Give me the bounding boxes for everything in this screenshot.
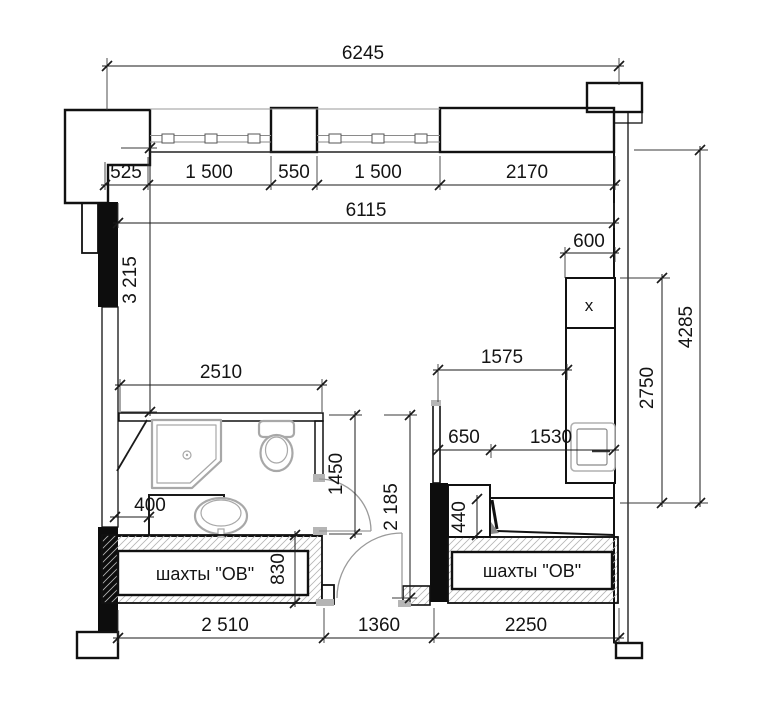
dim-bathroom-depth-label: 1450	[326, 453, 347, 495]
floor-plan-page: x шахты "ОВ" шахты "ОВ"	[0, 0, 770, 715]
dim-interior-width-label: 6115	[346, 200, 387, 221]
dim-2170: 2170	[506, 162, 548, 183]
entry-threshold-pad-right	[398, 600, 411, 607]
dim-1500a: 1 500	[185, 162, 233, 183]
dim-counter-depth: 600	[560, 231, 620, 278]
window-band	[150, 109, 440, 152]
dim-interior-width: 6115	[113, 200, 619, 228]
partition-pad	[431, 400, 441, 406]
dim-bathroom-width: 2510	[115, 362, 327, 412]
dim-hall-depth-label: 2 185	[381, 483, 402, 531]
kitchen-mark-label: x	[585, 296, 594, 315]
column-left-top	[98, 202, 118, 307]
wall-left-pilaster	[82, 203, 98, 253]
window-pier	[271, 108, 317, 152]
dim-counter-depth-label: 600	[573, 231, 605, 252]
dim-bath-cabinet-label: 400	[134, 495, 166, 516]
dim-top-total-label: 6245	[342, 43, 384, 64]
wall-right-notch	[628, 112, 642, 123]
dim-hall-depth: 2 185	[381, 410, 417, 603]
wall-top-right-section	[440, 108, 614, 152]
dim-bathroom-width-label: 2510	[200, 362, 242, 383]
shaft-left-label: шахты "ОВ"	[156, 564, 254, 584]
toilet	[259, 421, 294, 471]
dim-left-height-label: 3 215	[120, 256, 141, 304]
dim-2510-bottom: 2 510	[201, 615, 249, 636]
dim-right-total: 4285	[620, 145, 708, 508]
bathroom-wall-right	[315, 421, 323, 477]
shaft-right-label: шахты "ОВ"	[483, 561, 581, 581]
kitchen-sink	[571, 423, 615, 471]
entry-threshold-pad-left	[316, 599, 334, 606]
hall-partition	[433, 404, 440, 483]
column-hall	[430, 483, 448, 602]
dim-bench-label: 440	[449, 501, 470, 533]
dim-525: 525	[110, 162, 142, 183]
shaft-left: шахты "ОВ"	[102, 535, 334, 604]
dim-right-total-label: 4285	[676, 306, 697, 348]
dim-1500b: 1 500	[354, 162, 402, 183]
dim-kitchen-zone-label: 2750	[637, 367, 658, 409]
dim-550: 550	[278, 162, 310, 183]
wall-foot-left	[77, 632, 118, 658]
dim-kitchen-run-label: 1575	[481, 347, 523, 368]
dim-bottom-row: 2 510 1360 2250	[113, 608, 624, 643]
floor-plan-canvas: x шахты "ОВ" шахты "ОВ"	[0, 0, 770, 715]
dim-top-total: 6245	[102, 43, 624, 110]
dim-2250: 2250	[505, 615, 547, 636]
wall-left	[102, 307, 118, 527]
shower-tray	[152, 420, 221, 488]
dim-1530: 1530	[530, 427, 572, 448]
dim-1360: 1360	[358, 615, 400, 636]
wall-foot-right	[616, 643, 642, 658]
entry-door-swing	[337, 533, 402, 598]
dim-shaft-depth-label: 830	[268, 553, 289, 585]
dim-left-height: 3 215	[120, 143, 157, 417]
bath-door-hinge-pad-top	[313, 474, 325, 482]
wall-top-left-pier	[65, 110, 150, 203]
dim-bathroom-depth: 1450	[326, 410, 362, 539]
dim-window-row: 525 1 500 550 1 500 2170	[100, 156, 620, 190]
dim-650: 650	[448, 427, 480, 448]
dim-kitchen-run: 1575	[433, 347, 572, 402]
bathroom-corner-spur	[117, 420, 147, 471]
